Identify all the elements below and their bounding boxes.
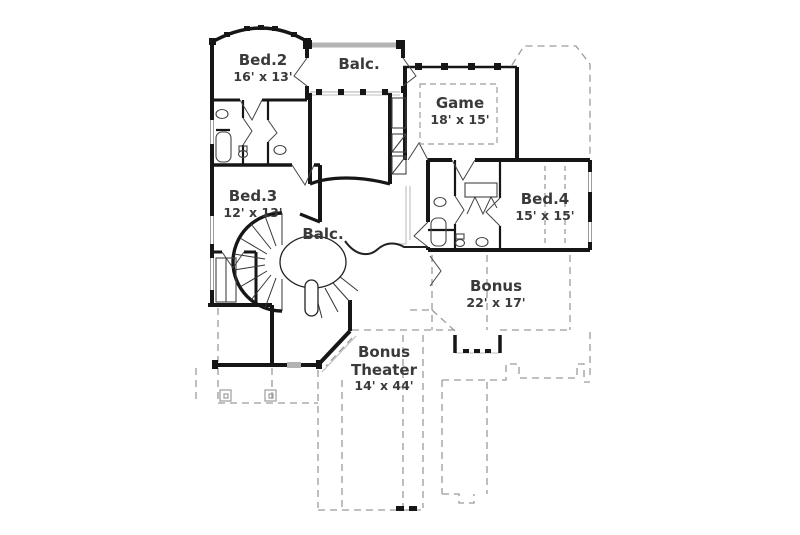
room-name: Bonus	[351, 344, 417, 362]
room-label-balcony-center: Balc.	[302, 226, 343, 244]
room-dims: 14' x 44'	[351, 379, 417, 394]
room-name2: Theater	[351, 362, 417, 380]
floor-plan-drawing	[0, 0, 800, 535]
room-label-bed3: Bed.3 12' x 13'	[223, 188, 282, 220]
room-dims: 18' x 15'	[430, 112, 489, 127]
room-label-bed2: Bed.2 16' x 13'	[233, 52, 292, 84]
room-name: Balc.	[338, 56, 379, 74]
room-label-bonus: Bonus 22' x 17'	[466, 278, 525, 310]
room-name: Bed.3	[223, 188, 282, 206]
bonus-bay-window	[455, 335, 500, 353]
room-dims: 16' x 13'	[233, 69, 292, 84]
room-name: Bonus	[466, 278, 525, 296]
room-dims: 22' x 17'	[466, 295, 525, 310]
porch-posts	[220, 390, 276, 401]
room-name: Bed.2	[233, 52, 292, 70]
room-label-game: Game 18' x 15'	[430, 95, 489, 127]
floor-plan-page: Bed.2 16' x 13' Balc. Game 18' x 15' Bed…	[0, 0, 800, 535]
room-label-bonus-theater: Bonus Theater 14' x 44'	[351, 344, 417, 394]
room-name: Bed.4	[515, 191, 574, 209]
balcony-rail-curve	[345, 241, 428, 254]
room-dims: 15' x 15'	[515, 208, 574, 223]
room-label-balcony-top: Balc.	[338, 56, 379, 74]
room-name: Balc.	[302, 226, 343, 244]
room-label-bed4: Bed.4 15' x 15'	[515, 191, 574, 223]
room-dims: 12' x 13'	[223, 205, 282, 220]
room-name: Game	[430, 95, 489, 113]
